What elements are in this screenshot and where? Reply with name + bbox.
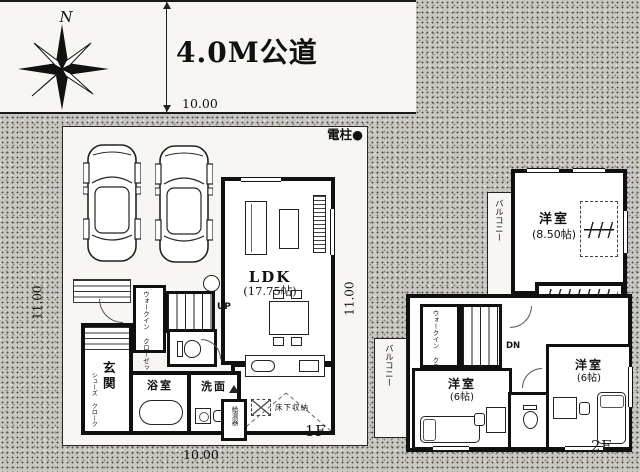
balcony-upper-label: バルコニー	[493, 199, 502, 242]
window	[527, 168, 559, 173]
lot-depth-dim-right: 11.00	[343, 279, 356, 319]
bedroom2-size-label: (6帖)	[415, 392, 509, 403]
compass-north-label: N	[58, 8, 73, 26]
ldk-size-label: (17.75帖)	[225, 285, 315, 298]
desk	[553, 397, 577, 419]
dining-chair	[291, 337, 302, 346]
toilet-bowl	[184, 340, 201, 358]
entrance-floor-steps	[85, 327, 129, 351]
water-heater-marker-icon	[229, 385, 239, 393]
window	[241, 177, 281, 182]
shoes-closet-label-line2: クローク	[90, 403, 97, 427]
stairs-1f	[165, 291, 215, 333]
closet-dashed	[580, 201, 618, 257]
road-area: N 4.0M公道 10.00	[0, 0, 416, 114]
floorplan-canvas: N 4.0M公道 10.00 電柱●	[0, 0, 640, 472]
road-dimension-line	[166, 2, 167, 112]
room-toilet-2f	[508, 392, 550, 450]
toilet-bowl	[523, 411, 538, 429]
door-arc	[201, 339, 221, 359]
car-icon	[155, 140, 213, 268]
door-arc	[522, 368, 542, 388]
door-arc	[99, 299, 123, 323]
room-wic-1f: ウォークイン クローゼット	[133, 285, 166, 353]
room-wic-2f: ウォークイン クローゼット	[420, 304, 460, 368]
stairs-dn-label: DN	[506, 342, 520, 351]
coffee-table	[279, 209, 299, 249]
road-label: 4.0M公道	[176, 38, 318, 69]
washing-machine	[195, 408, 211, 424]
room-bedroom3: 洋室 (6帖)	[546, 344, 632, 450]
desk	[486, 407, 506, 433]
room-bedroom-main: 洋室 (8.50帖)	[511, 169, 627, 295]
chair	[474, 413, 485, 426]
bedroom3-size-label: (6帖)	[549, 373, 629, 384]
lot-1f: 電柱●	[62, 126, 368, 446]
floor2-lower-block: ウォークイン クローゼット DN 洋室 (6帖) 洋室 (6帖	[406, 294, 632, 452]
utility-pole-label: 電柱●	[327, 128, 363, 142]
chair	[579, 402, 590, 415]
room-bathroom: 浴室	[129, 371, 191, 435]
window	[330, 209, 335, 255]
water-heater-box: 給湯器	[221, 399, 247, 441]
tv-board	[313, 195, 326, 253]
bed	[420, 416, 480, 443]
room-ldk: LDK (17.75帖)	[221, 177, 335, 365]
underfloor-storage-hatch	[251, 399, 271, 416]
dimension-arrow-down-icon	[163, 105, 171, 112]
wic-1f-label-line1: ウォークイン	[141, 291, 149, 330]
shrub-icon	[203, 275, 220, 292]
entrance-label: 玄関	[101, 361, 115, 392]
floor1-label: 1F	[305, 425, 326, 441]
hanger-rod-icon	[584, 222, 614, 238]
wic-2f-label-line1: ウォークイン	[431, 310, 439, 349]
stairs-2f	[460, 304, 502, 368]
window	[623, 211, 628, 253]
shoes-closet-label-line1: シューズ	[90, 372, 97, 396]
room-bedroom2: 洋室 (6帖)	[412, 368, 512, 450]
bathroom-label: 浴室	[133, 380, 187, 392]
bedroom2-label: 洋室	[415, 378, 509, 391]
window	[573, 168, 605, 173]
stove	[299, 360, 319, 372]
road-frontage-dim: 10.00	[182, 97, 218, 111]
water-heater-label: 給湯器	[230, 406, 237, 426]
kitchen-counter	[245, 355, 325, 377]
toilet-tank	[177, 341, 183, 357]
floor2-label: 2F	[591, 440, 612, 456]
sofa	[245, 201, 267, 255]
balcony-upper: バルコニー	[487, 192, 512, 295]
balcony-lower-label: バルコニー	[383, 344, 392, 387]
bedroom3-label: 洋室	[549, 359, 629, 372]
dining-table	[269, 301, 309, 335]
dining-chair	[273, 337, 284, 346]
stairs-up-label: UP	[217, 303, 231, 313]
door-arc	[510, 306, 532, 328]
room-entrance: 玄関 シューズ クローク	[81, 323, 133, 435]
underfloor-storage-label: 床下収納	[275, 404, 309, 412]
window	[433, 446, 469, 451]
lot-width-dim: 10.00	[183, 448, 219, 462]
bed	[597, 392, 626, 444]
toilet-tank	[523, 405, 537, 410]
bathtub	[139, 400, 183, 425]
balcony-lower: バルコニー	[374, 338, 407, 438]
car-icon	[83, 139, 141, 267]
sink	[251, 360, 275, 372]
dimension-arrow-up-icon	[163, 2, 171, 9]
lot-depth-dim-left: 11.00	[31, 283, 44, 323]
compass-rose-icon: N	[6, 6, 118, 112]
